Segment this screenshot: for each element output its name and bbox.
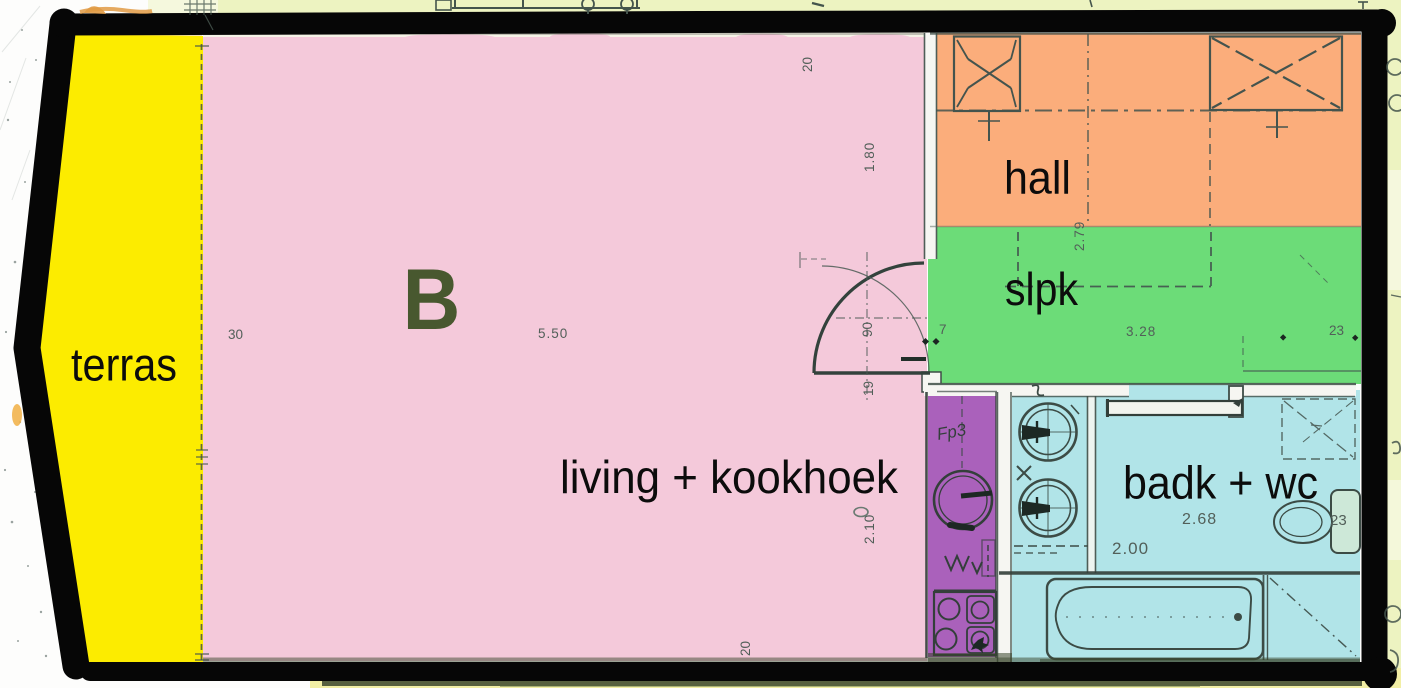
- svg-text:terras: terras: [71, 339, 177, 391]
- svg-text:20: 20: [800, 57, 815, 72]
- svg-text:slpk: slpk: [1005, 263, 1079, 315]
- svg-text:hall: hall: [1004, 152, 1071, 204]
- svg-text:90: 90: [860, 322, 875, 337]
- svg-text:20: 20: [738, 641, 753, 656]
- svg-text:2.68: 2.68: [1182, 511, 1217, 528]
- svg-text:2.10: 2.10: [862, 514, 877, 544]
- svg-text:badk + wc: badk + wc: [1123, 457, 1318, 509]
- svg-text:1.80: 1.80: [862, 142, 877, 172]
- svg-text:3.28: 3.28: [1126, 324, 1156, 339]
- svg-text:23: 23: [1330, 512, 1347, 529]
- svg-text:30: 30: [228, 327, 243, 342]
- svg-text:living + kookhoek: living + kookhoek: [560, 451, 899, 503]
- svg-text:7: 7: [939, 322, 947, 337]
- svg-text:2.00: 2.00: [1112, 539, 1149, 558]
- svg-text:5.50: 5.50: [538, 326, 568, 341]
- svg-text:2.79: 2.79: [1072, 221, 1087, 251]
- svg-text:B: B: [403, 251, 461, 347]
- svg-text:23: 23: [1329, 323, 1344, 338]
- svg-text:19: 19: [861, 381, 876, 396]
